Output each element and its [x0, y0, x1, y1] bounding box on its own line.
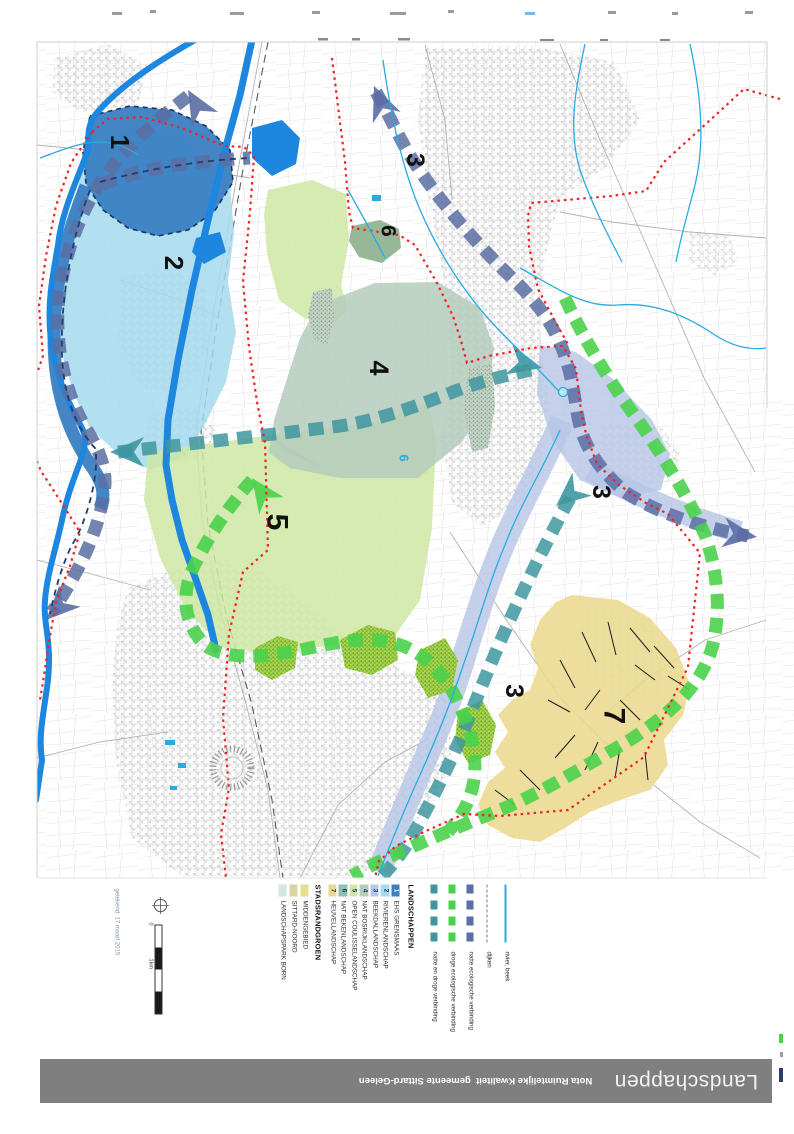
legend-item-label: LANDSCHAPSPARK BORN: [280, 901, 287, 980]
legend-item-label: RIVIERENLANDSCHAP: [382, 901, 389, 969]
date-note: getekend: 17 maart 2015: [114, 889, 120, 956]
scale-bar: [155, 925, 163, 1015]
zone-number-label: 6: [397, 454, 412, 461]
legend-item-label: MIDDENGEBIED: [302, 901, 309, 950]
legend-header-stadsrandgroen: STADSRANDGROEN: [314, 885, 323, 961]
legend-item-label: EHS GRENSMAAS: [393, 901, 400, 956]
legend-line-symbol: [467, 885, 474, 943]
map-legend: rivier, beek dijken natte ecologische ve…: [90, 885, 530, 1060]
legend-line-symbol: [487, 885, 488, 943]
legend-line-label: droge ecologische verbinding: [450, 952, 457, 1033]
footer-content: Landschappen Nota Ruimtelijke Kwaliteit …: [40, 1059, 772, 1103]
zone-number-label: 6: [377, 225, 400, 237]
legend-swatch: 3: [371, 885, 380, 897]
legend-item-label: NAT BEKENLANDSCHAP: [340, 901, 347, 975]
zone-number-label: 1: [105, 135, 135, 149]
zone-number-label: 2: [159, 256, 189, 270]
legend-swatch: 1: [392, 885, 401, 897]
zone-number-label: 3: [401, 153, 429, 167]
legend-swatch: [301, 885, 310, 897]
legend-line-item: rivier, beek: [500, 885, 512, 1060]
legend-item: 3 BEEKDALLANDSCHAP: [370, 885, 380, 1060]
zone-number-label: 3: [587, 485, 615, 499]
legend-item: LANDSCHAPSPARK BORN: [278, 885, 288, 1060]
legend-swatch: 6: [339, 885, 348, 897]
document-title: Landschappen: [614, 1069, 758, 1093]
legend-item: 2 RIVIERENLANDSCHAP: [380, 885, 390, 1060]
scale-km-label: 1km: [148, 959, 154, 970]
scale-zero-label: 0: [148, 923, 154, 926]
legend-item-label: HEUVELLANDSCHAP: [330, 901, 337, 965]
scale-bar-segment: [156, 992, 162, 1014]
footer-bar: Landschappen Nota Ruimtelijke Kwaliteit …: [40, 1059, 772, 1103]
legend-item: 5 OPEN COULISSELANDSCHAP: [349, 885, 359, 1060]
legend-item-label: NAT BOSRIJKLANDSCHAP: [361, 901, 368, 980]
zone-number-label: 5: [261, 514, 294, 531]
legend-line-symbol: [431, 885, 438, 943]
north-arrow-icon: [152, 897, 170, 915]
legend-line-label: natte en droge verbinding: [432, 952, 439, 1022]
legend-item-label: SITTARD-NOORD: [291, 901, 298, 953]
legend-item-label: OPEN COULISSELANDSCHAP: [351, 901, 358, 991]
legend-line-symbol: [449, 885, 456, 943]
legend-line-item: droge ecologische verbinding: [446, 885, 458, 1060]
legend-swatch: 2: [381, 885, 390, 897]
zone-number-label: 3: [500, 684, 528, 698]
legend-line-item: natte en droge verbinding: [428, 885, 440, 1060]
legend-item: SITTARD-NOORD: [289, 885, 299, 1060]
legend-swatch: 7: [329, 885, 338, 897]
legend-line-label: dijken: [486, 952, 493, 968]
scale-bar-segment: [156, 948, 162, 970]
legend-line-label: natte ecologische verbinding: [468, 952, 475, 1030]
legend-item: 4 NAT BOSRIJKLANDSCHAP: [359, 885, 369, 1060]
legend-item-label: BEEKDALLANDSCHAP: [372, 901, 379, 969]
legend-swatch: 4: [360, 885, 369, 897]
document-subtitle: Nota Ruimtelijke Kwaliteit gemeente Sitt…: [359, 1076, 592, 1087]
legend-item: 1 EHS GRENSMAAS: [391, 885, 401, 1060]
legend-line-label: rivier, beek: [504, 952, 511, 982]
document-page: 1236453376 rivier, beek dijken natte eco…: [0, 0, 794, 1134]
legend-item: 7 HEUVELLANDSCHAP: [328, 885, 338, 1060]
zone-number-label: 4: [364, 360, 394, 375]
zone-number-label: 7: [598, 708, 631, 725]
scale-bar-segment: [156, 970, 162, 992]
legend-line-item: natte ecologische verbinding: [464, 885, 476, 1060]
legend-swatch: [279, 885, 288, 897]
scale-bar-segment: [156, 926, 162, 948]
legend-item: MIDDENGEBIED: [300, 885, 310, 1060]
legend-item: 6 NAT BEKENLANDSCHAP: [338, 885, 348, 1060]
legend-line-item: dijken: [482, 885, 494, 1060]
legend-line-symbol: [505, 885, 507, 943]
scale-bar-group: 0 1km: [142, 885, 172, 1060]
legend-swatch: [290, 885, 299, 897]
legend-header-landschappen: LANDSCHAPPEN: [407, 885, 416, 949]
legend-swatch: 5: [350, 885, 359, 897]
